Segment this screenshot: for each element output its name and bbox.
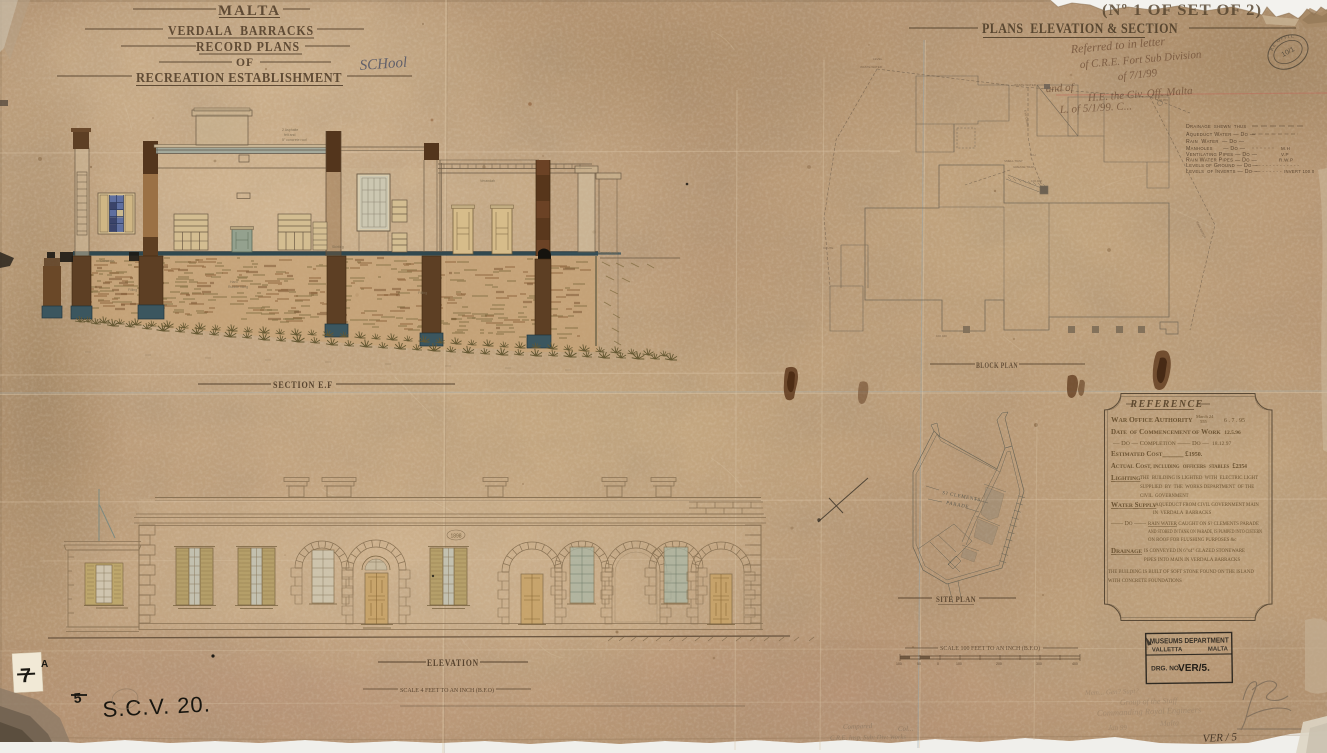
svg-text:1898: 1898 — [450, 534, 461, 540]
svg-text:SECTION E.F: SECTION E.F — [273, 381, 333, 391]
svg-text:SITE PLAN: SITE PLAN — [936, 594, 976, 604]
svg-text:WATER SUPPLY: WATER SUPPLY — [1111, 501, 1156, 509]
svg-text:and of: and of — [1046, 82, 1076, 96]
svg-text:5" concrete roof: 5" concrete roof — [282, 138, 307, 142]
svg-text:Verandah: Verandah — [480, 179, 495, 183]
svg-text:SUPPLIED BY THE WORKS DEPAR: SUPPLIED BY THE WORKS DEPARTMENT OF THE — [1140, 485, 1254, 490]
svg-text:VER/5.: VER/5. — [1178, 663, 1210, 674]
svg-text:R.W.P: R.W.P — [1279, 158, 1293, 163]
svg-text:— DO — COMPLETION —— DO — 18.: — DO — COMPLETION —— DO — 18.12.97 — [1112, 440, 1232, 447]
svg-text:0: 0 — [937, 662, 939, 666]
svg-text:A: A — [41, 659, 48, 670]
svg-text:SCHool: SCHool — [359, 55, 408, 74]
svg-text:, CAUGHT ON S? CLEMENTS PARADE: , CAUGHT ON S? CLEMENTS PARADE — [1176, 522, 1259, 527]
svg-text:SMELL TRAP: SMELL TRAP — [1004, 159, 1023, 163]
svg-text:MALTA: MALTA — [218, 3, 281, 19]
svg-text:100.056: 100.056 — [1157, 98, 1168, 102]
svg-text:M.H: M.H — [1030, 153, 1036, 157]
svg-text:RECREATION ESTABLISHMENT: RECREATION ESTABLISHMENT — [136, 71, 342, 86]
svg-text:5: 5 — [73, 689, 82, 706]
svg-text:Jan 99: Jan 99 — [1108, 724, 1127, 732]
svg-text:SCALE 100 FEET TO AN INCH (B.F: SCALE 100 FEET TO AN INCH (B.F.O) — [940, 645, 1040, 652]
svg-text:100.040: 100.040 — [936, 334, 947, 338]
svg-text:INVERT 100.0: INVERT 100.0 — [1284, 169, 1315, 174]
svg-text:RAIN WATER: RAIN WATER — [1148, 522, 1178, 527]
svg-text:100: 100 — [956, 662, 962, 666]
svg-text:DRG. NO.: DRG. NO. — [1151, 665, 1181, 672]
svg-text:200: 200 — [996, 662, 1002, 666]
svg-text:V.P: V.P — [1281, 152, 1289, 157]
svg-text:Hard: Hard — [230, 280, 238, 284]
svg-text:MUSEUMS DEPARTMENT: MUSEUMS DEPARTMENT — [1150, 635, 1230, 645]
svg-text:ON ROOF FOR FLUSHING PURPOSES: ON ROOF FOR FLUSHING PURPOSES &c — [1148, 538, 1236, 543]
svg-text:REFERENCE: REFERENCE — [1129, 399, 1203, 410]
svg-text:SCALE 4 FEET TO AN INCH (B.F.O: SCALE 4 FEET TO AN INCH (B.F.O) — [400, 687, 494, 694]
svg-text:LEVEL: LEVEL — [873, 57, 883, 61]
svg-text:Ground level: Ground level — [598, 251, 618, 255]
svg-text:ELEVATION: ELEVATION — [427, 658, 479, 668]
svg-text:ESTIMATED COST＿＿＿ £1950.: ESTIMATED COST＿＿＿ £1950. — [1111, 450, 1203, 458]
svg-text:RAIN WATER: RAIN WATER — [1152, 93, 1171, 97]
svg-text:Col...: Col... — [898, 724, 914, 733]
svg-text:LIGHTING: LIGHTING — [1111, 474, 1141, 482]
svg-text:M.H: M.H — [1281, 146, 1290, 151]
svg-text:300: 300 — [1036, 662, 1042, 666]
svg-text:400: 400 — [1072, 662, 1078, 666]
svg-text:100: 100 — [896, 662, 902, 666]
svg-text:THE BUILDING IS LIGHTED WITH: THE BUILDING IS LIGHTED WITH ELECTRIC LI… — [1140, 476, 1258, 481]
svg-text:Compared: Compared — [843, 722, 873, 731]
svg-text:BLOCK PLAN: BLOCK PLAN — [976, 360, 1018, 370]
svg-text:VERDALA BARRACKS: VERDALA BARRACKS — [168, 23, 314, 38]
svg-text:MALTA: MALTA — [1208, 646, 1229, 652]
svg-text:—— DO ——: —— DO —— — [1110, 521, 1147, 527]
svg-text:VER / 5: VER / 5 — [1202, 731, 1237, 745]
svg-text:DRAINAGE: DRAINAGE — [1111, 547, 1142, 555]
svg-text:2 Asphalte: 2 Asphalte — [282, 128, 298, 132]
svg-text:Filling: Filling — [418, 291, 427, 295]
svg-text:Malta: Malta — [1159, 718, 1179, 728]
svg-text:DATE OF COMMENCEMENT OF WORK: DATE OF COMMENCEMENT OF WORK 12.5.96 — [1111, 428, 1241, 436]
svg-text:555: 555 — [1200, 419, 1208, 424]
svg-text:AND STORED IN TANK ON PARADE,: AND STORED IN TANK ON PARADE, IS PUMPED … — [1148, 530, 1262, 535]
svg-text:WITH CONCRETE FOUNDATIONS: WITH CONCRETE FOUNDATIONS — [1108, 579, 1182, 584]
svg-text:GREASE TRAP: GREASE TRAP — [1013, 165, 1034, 169]
svg-text:6 . 7 . 95: 6 . 7 . 95 — [1224, 418, 1245, 424]
svg-text:Skirting: Skirting — [332, 245, 344, 249]
svg-text:Rubble filling: Rubble filling — [228, 285, 248, 289]
svg-text:WASTE WATER: WASTE WATER — [1014, 83, 1037, 87]
svg-text:RECORD PLANS: RECORD PLANS — [196, 39, 300, 54]
svg-text:IS CONVEYED IN 6"x4" GLAZED ST: IS CONVEYED IN 6"x4" GLAZED STONEWARE — [1144, 549, 1245, 554]
svg-text:Concrete: Concrete — [100, 259, 114, 263]
svg-text:OF: OF — [236, 55, 254, 69]
svg-text:THE BUILDING IS BUILT OF SOFT: THE BUILDING IS BUILT OF SOFT STONE FOUN… — [1108, 570, 1254, 575]
svg-text:CHUTE: CHUTE — [823, 246, 833, 250]
svg-text:felt and: felt and — [284, 133, 296, 137]
svg-text:IN VERDALA BARRACKS: IN VERDALA BARRACKS — [1153, 511, 1212, 516]
svg-text:: AQUEDUCT FROM CIVIL GOVERNME: : AQUEDUCT FROM CIVIL GOVERNMENT MAIN — [1153, 503, 1259, 508]
svg-text:7: 7 — [20, 665, 32, 688]
svg-text:50: 50 — [917, 662, 921, 666]
svg-text:(Nº 1 OF SET OF 2): (Nº 1 OF SET OF 2) — [1102, 2, 1262, 19]
svg-text:WASTE WATER: WASTE WATER — [860, 65, 883, 69]
svg-text:VALLETTA: VALLETTA — [1152, 647, 1183, 653]
svg-text:Filling: Filling — [128, 288, 137, 292]
svg-text:100.048: 100.048 — [1031, 179, 1042, 183]
svg-text:C.R.E. Insp. Sub: Div: Works: C.R.E. Insp. Sub: Div: Works — [830, 734, 907, 742]
svg-text:PIPES INTO MAIN IN VERDALA BAR: PIPES INTO MAIN IN VERDALA BARRACKS — [1144, 558, 1241, 563]
svg-text:CIVIL GOVERNMENT: CIVIL GOVERNMENT — [1140, 494, 1189, 499]
